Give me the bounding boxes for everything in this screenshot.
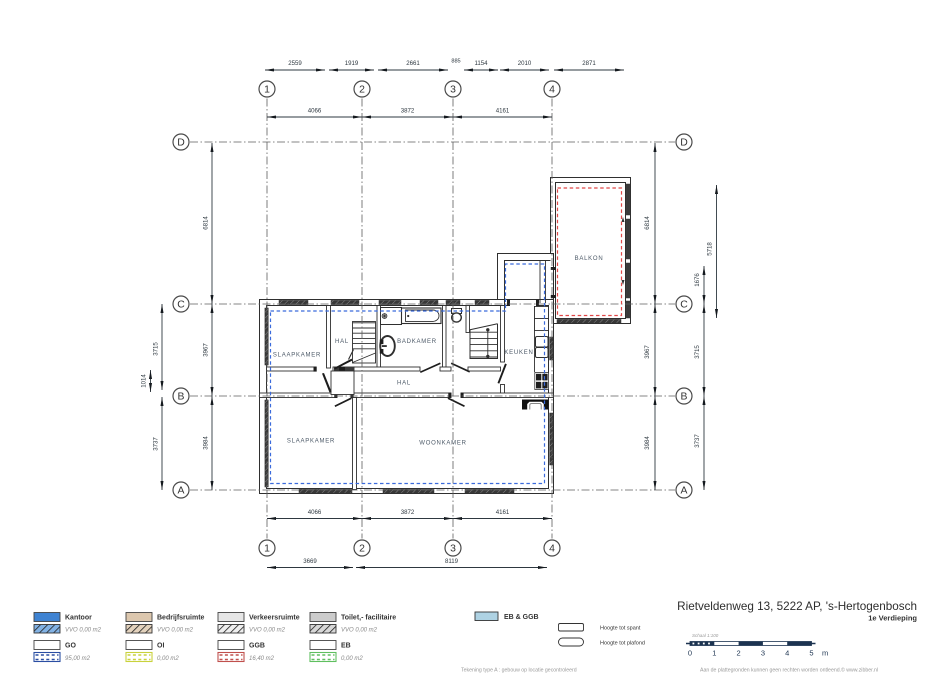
svg-text:3669: 3669 [303,558,317,565]
svg-text:A: A [178,486,185,497]
svg-text:EB & GGB: EB & GGB [504,614,539,621]
svg-text:B: B [681,392,688,403]
svg-text:3872: 3872 [401,509,415,516]
svg-text:Toilet,- facilitaire: Toilet,- facilitaire [341,615,396,622]
svg-text:16,40 m2: 16,40 m2 [249,656,275,662]
svg-text:GGB: GGB [249,643,265,650]
svg-text:C: C [680,300,688,311]
svg-text:VVO 0,00 m2: VVO 0,00 m2 [249,628,286,634]
svg-text:1676: 1676 [694,273,701,287]
svg-text:Hoogte tot spant: Hoogte tot spant [600,626,641,632]
svg-text:1: 1 [712,649,716,658]
svg-text:C: C [177,300,185,311]
svg-text:2661: 2661 [406,60,420,67]
svg-text:Tekening type A : gebouw op lo: Tekening type A : gebouw op locatie geco… [461,668,577,674]
svg-text:1014: 1014 [141,374,148,388]
svg-text:A: A [681,486,688,497]
svg-text:1: 1 [264,85,270,96]
svg-text:1e Verdieping: 1e Verdieping [868,614,917,623]
svg-text:2010: 2010 [518,60,532,67]
svg-text:6814: 6814 [644,216,651,230]
svg-text:HAL: HAL [335,339,349,345]
svg-text:3737: 3737 [153,437,160,451]
svg-text:4161: 4161 [496,108,510,115]
svg-text:Rietveldenweg 13, 5222 AP, 's-: Rietveldenweg 13, 5222 AP, 's-Hertogenbo… [677,600,917,613]
svg-text:1: 1 [264,544,270,555]
svg-text:KEUKEN: KEUKEN [504,350,533,356]
svg-text:3984: 3984 [203,436,210,450]
svg-text:SLAAPKAMER: SLAAPKAMER [287,439,335,445]
svg-text:2: 2 [737,649,741,658]
svg-text:3: 3 [761,649,765,658]
svg-text:EB: EB [341,643,351,650]
svg-text:Hoogte tot plafond: Hoogte tot plafond [600,641,645,647]
svg-text:3715: 3715 [153,342,160,356]
svg-text:2: 2 [359,544,365,555]
svg-text:3984: 3984 [644,436,651,450]
svg-text:D: D [177,138,185,149]
svg-text:4066: 4066 [308,108,322,115]
svg-text:4161: 4161 [496,509,510,516]
svg-text:4: 4 [785,649,789,658]
svg-text:4066: 4066 [308,509,322,516]
svg-text:OI: OI [157,643,164,650]
svg-text:VVO 0,00 m2: VVO 0,00 m2 [341,628,378,634]
svg-text:4: 4 [549,544,555,555]
svg-text:Kantoor: Kantoor [65,615,92,622]
svg-text:3967: 3967 [203,343,210,357]
svg-text:Schaal 1:100: Schaal 1:100 [692,633,719,638]
svg-text:8119: 8119 [445,558,459,565]
svg-text:D: D [680,138,688,149]
svg-text:1154: 1154 [474,60,488,67]
svg-text:885: 885 [451,59,460,65]
svg-text:0,00 m2: 0,00 m2 [341,656,363,662]
svg-text:Bedrijfsruimte: Bedrijfsruimte [157,615,205,622]
svg-text:SLAAPKAMER: SLAAPKAMER [273,353,321,359]
svg-text:3967: 3967 [644,345,651,359]
svg-text:B: B [178,392,185,403]
svg-text:3737: 3737 [694,434,701,448]
svg-text:GO: GO [65,643,76,650]
svg-text:1919: 1919 [345,60,359,67]
svg-text:m: m [822,649,828,658]
svg-text:VVO 0,00 m2: VVO 0,00 m2 [65,628,102,634]
svg-text:Aan de plattegronden kunnen ge: Aan de plattegronden kunnen geen rechten… [700,667,878,674]
svg-text:2871: 2871 [582,60,596,67]
svg-text:5718: 5718 [707,242,714,256]
svg-text:0: 0 [688,649,692,658]
svg-text:5: 5 [809,649,813,658]
svg-text:6814: 6814 [203,216,210,230]
svg-text:3: 3 [450,85,456,96]
svg-text:2: 2 [359,85,365,96]
svg-text:95,00 m2: 95,00 m2 [65,656,91,662]
svg-text:0,00 m2: 0,00 m2 [157,656,179,662]
svg-text:BALKON: BALKON [575,256,604,262]
svg-text:BADKAMER: BADKAMER [397,339,437,345]
svg-text:3715: 3715 [694,345,701,359]
svg-text:HAL: HAL [397,381,411,387]
svg-text:3872: 3872 [401,108,415,115]
svg-text:WOONKAMER: WOONKAMER [419,441,466,447]
svg-text:3: 3 [450,544,456,555]
svg-text:VVO 0,00 m2: VVO 0,00 m2 [157,628,194,634]
svg-text:2559: 2559 [288,60,302,67]
svg-text:Verkeersruimte: Verkeersruimte [249,615,300,622]
svg-text:4: 4 [549,85,555,96]
